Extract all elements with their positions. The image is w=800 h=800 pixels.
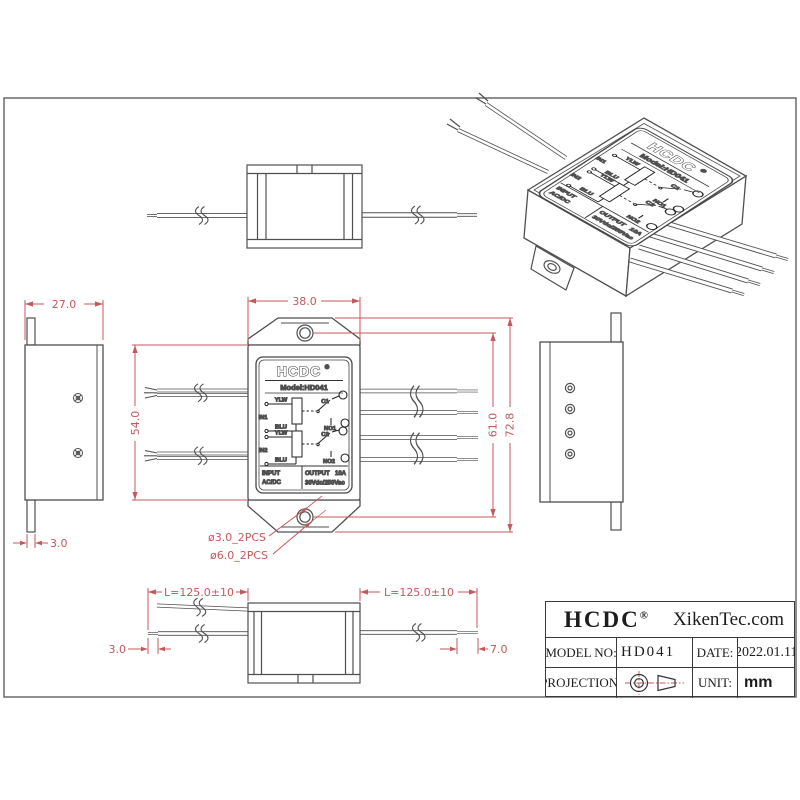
svg-text:38.0: 38.0: [292, 295, 317, 308]
front-wires-right: [360, 386, 478, 465]
dim-body-height: 54.0: [129, 345, 247, 500]
dim-side-tab: 3.0: [13, 534, 68, 550]
registered-mark: ®: [640, 609, 650, 621]
dim-tip-right: 7.0: [440, 638, 508, 656]
isometric-view: [447, 93, 788, 296]
svg-text:61.0: 61.0: [487, 413, 500, 438]
title-block-header: HCDC® XikenTec.com: [546, 602, 794, 638]
svg-text:27.0: 27.0: [52, 298, 77, 311]
date-value: 2022.01.11: [738, 638, 795, 667]
svg-text:ø6.0_2PCS: ø6.0_2PCS: [210, 549, 268, 562]
unit-value: mm: [738, 668, 795, 698]
svg-text:3.0: 3.0: [50, 537, 68, 550]
title-block-model-row: MODEL NO: HD041 DATE: 2022.01.11: [546, 638, 794, 668]
company-logo: HCDC®: [546, 607, 650, 633]
top-view: [147, 165, 477, 248]
top-view-wire-right: [362, 206, 477, 224]
svg-text:L=125.0±10: L=125.0±10: [164, 586, 234, 599]
front-label: [256, 357, 352, 493]
dim-side-width: 27.0: [25, 298, 103, 340]
svg-text:54.0: 54.0: [129, 411, 142, 436]
svg-text:ø3.0_2PCS: ø3.0_2PCS: [208, 531, 266, 544]
top-view-wire-left: [147, 207, 247, 225]
bottom-view: [148, 598, 478, 683]
bottom-view-body: [248, 603, 360, 683]
right-side-view: [540, 313, 623, 530]
front-wires-left: [144, 384, 248, 465]
svg-text:L=125.0±10: L=125.0±10: [384, 586, 454, 599]
left-side-view: [25, 318, 103, 532]
company-website: XikenTec.com: [673, 609, 794, 631]
date-label: DATE:: [693, 638, 738, 667]
projection-label: PROJECTION:: [546, 668, 617, 698]
drawing-sheet: HCDC ® Model:HD041 YLW BLU IN1: [0, 0, 800, 800]
iso-wires-input: [447, 93, 566, 172]
svg-text:7.0: 7.0: [490, 643, 508, 656]
title-block: HCDC® XikenTec.com MODEL NO: HD041 DATE:…: [545, 601, 795, 697]
unit-label: UNIT:: [693, 668, 738, 698]
model-label: MODEL NO:: [546, 638, 617, 667]
dim-tip-left: 3.0: [109, 638, 172, 656]
top-view-body: [247, 165, 362, 248]
projection-symbol-icon: [617, 668, 693, 698]
title-block-projection-row: PROJECTION: UNIT: mm: [546, 668, 794, 698]
model-value: HD041: [617, 638, 693, 667]
dim-wire-length-right: L=125.0±10: [360, 586, 477, 628]
svg-text:72.8: 72.8: [504, 413, 517, 438]
svg-text:3.0: 3.0: [109, 643, 127, 656]
